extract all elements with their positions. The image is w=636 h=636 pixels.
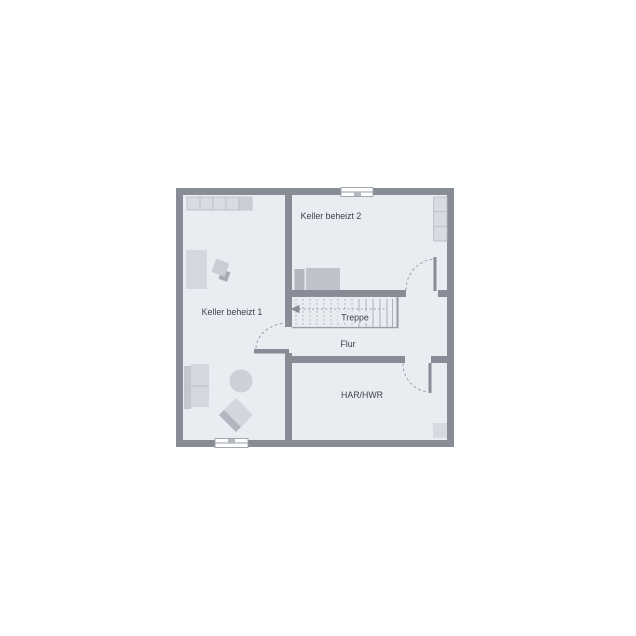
- appliance-harhwr: [433, 423, 447, 438]
- wall-keller1-divider-lower: [285, 353, 292, 440]
- door-harhwr-leaf: [429, 363, 432, 393]
- shelf-unit-keller1: [187, 197, 252, 210]
- wall-keller2-south: [292, 290, 406, 297]
- wall-jamb-keller2-door: [438, 290, 447, 297]
- wall-keller1-divider-upper: [285, 195, 292, 327]
- door-keller2-leaf: [434, 257, 437, 291]
- door-keller1-leaf: [254, 349, 289, 354]
- table-keller1: [230, 370, 253, 393]
- shelf-unit-keller2: [434, 197, 448, 241]
- floorplan-page: Keller beheizt 1 Keller beheizt 2 Treppe…: [0, 0, 636, 636]
- window-top: [341, 188, 373, 197]
- room-label-har-hwr: HAR/HWR: [341, 390, 383, 400]
- room-label-keller-beheizt-1: Keller beheizt 1: [202, 307, 263, 317]
- wardrobe-keller1: [186, 250, 207, 289]
- room-label-treppe: Treppe: [341, 313, 369, 323]
- cabinet-keller1: [184, 364, 209, 409]
- room-label-flur: Flur: [340, 339, 355, 349]
- wall-harhwr-north: [285, 356, 405, 363]
- room-area-flur: [292, 328, 447, 356]
- bed-keller2: [295, 268, 341, 290]
- room-area-har-hwr: [292, 363, 447, 440]
- floorplan-canvas: Keller beheizt 1 Keller beheizt 2 Treppe…: [0, 0, 636, 636]
- window-bottom: [215, 439, 248, 448]
- wall-jamb-harhwr-door: [431, 356, 447, 363]
- room-label-keller-beheizt-2: Keller beheizt 2: [301, 211, 362, 221]
